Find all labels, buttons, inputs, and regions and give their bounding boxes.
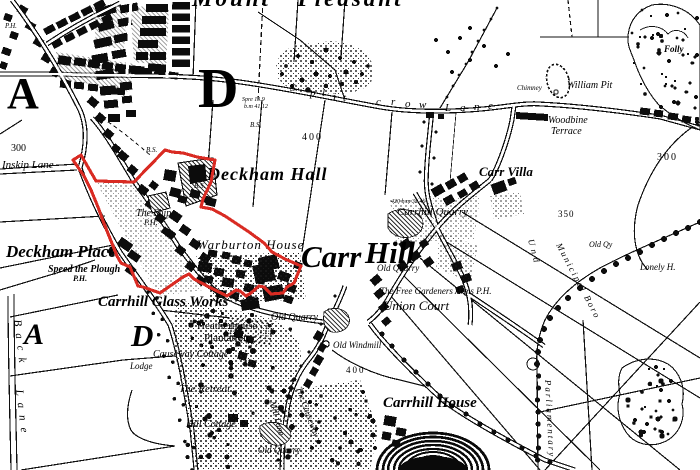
svg-text:Old Quarry: Old Quarry (258, 445, 300, 455)
svg-text:c: c (376, 96, 381, 108)
svg-text:B.S.: B.S. (146, 146, 158, 154)
svg-text:Woodbine: Woodbine (548, 115, 588, 126)
svg-text:w: w (419, 99, 427, 111)
svg-text:Plantation: Plantation (204, 332, 249, 344)
svg-text:The Free Gardeners Arms P.H.: The Free Gardeners Arms P.H. (380, 286, 492, 296)
svg-text:r: r (391, 96, 396, 108)
svg-text:l: l (322, 87, 325, 99)
svg-text:Deckham Place: Deckham Place (5, 242, 116, 261)
svg-text:Carrhill House: Carrhill House (383, 395, 477, 411)
svg-text:i: i (333, 91, 336, 103)
svg-text:Old Quarry: Old Quarry (377, 263, 419, 273)
svg-text:Lodge: Lodge (129, 361, 153, 371)
svg-text:a: a (460, 102, 466, 114)
svg-text:Hill Cottage: Hill Cottage (185, 419, 236, 430)
svg-text:The Retreat: The Retreat (179, 383, 231, 395)
svg-text:L: L (444, 102, 451, 114)
svg-text:P.H.: P.H. (4, 22, 17, 30)
svg-text:Old Windmill: Old Windmill (333, 340, 382, 350)
svg-text:Mount Pleasant: Mount Pleasant (191, 0, 403, 11)
svg-text:Spre 13.9: Spre 13.9 (242, 97, 265, 103)
svg-text:Heatherhouse: Heatherhouse (197, 320, 258, 332)
svg-text:Lonely H.: Lonely H. (639, 262, 676, 272)
svg-text:Inskip Lane: Inskip Lane (1, 159, 54, 171)
svg-text:400: 400 (346, 365, 366, 375)
svg-text:P.H.: P.H. (143, 218, 158, 227)
svg-text:Old Quarry: Old Quarry (271, 312, 319, 323)
svg-text:p: p (309, 87, 316, 99)
svg-text:420 b.m 32.46: 420 b.m 32.46 (391, 198, 425, 205)
svg-text:Deckham Hall: Deckham Hall (206, 164, 328, 184)
svg-text:D: D (198, 58, 238, 120)
svg-text:Warburton House: Warburton House (197, 237, 304, 252)
svg-text:Union Court: Union Court (383, 298, 449, 313)
svg-text:300: 300 (657, 152, 678, 163)
svg-text:300: 300 (11, 143, 26, 154)
svg-text:o: o (405, 98, 411, 110)
svg-text:B.S.: B.S. (194, 182, 206, 190)
svg-text:D: D (130, 318, 153, 353)
svg-text:Carrhill Quarry: Carrhill Quarry (397, 206, 468, 218)
svg-text:A: A (7, 69, 39, 118)
svg-text:Carr: Carr (301, 239, 362, 274)
svg-text:William Pit: William Pit (567, 80, 613, 91)
svg-text:S: S (290, 82, 296, 94)
svg-text:Causeway Cottage: Causeway Cottage (153, 349, 229, 360)
svg-text:Terrace: Terrace (551, 126, 582, 137)
svg-text:400: 400 (302, 132, 323, 143)
svg-text:n: n (474, 101, 480, 113)
svg-text:P.H.: P.H. (73, 274, 87, 283)
svg-text:Carrhill Glass Works: Carrhill Glass Works (98, 294, 228, 310)
svg-text:350: 350 (558, 209, 575, 219)
svg-text:Old Qy: Old Qy (589, 240, 613, 249)
svg-text:Carr Villa: Carr Villa (479, 164, 533, 179)
svg-text:B.S.: B.S. (250, 121, 262, 129)
svg-text:b.m 41.12: b.m 41.12 (244, 103, 268, 110)
svg-text:Chimney: Chimney (517, 84, 543, 92)
svg-text:e: e (488, 100, 493, 112)
svg-text:Folly: Folly (663, 44, 685, 54)
